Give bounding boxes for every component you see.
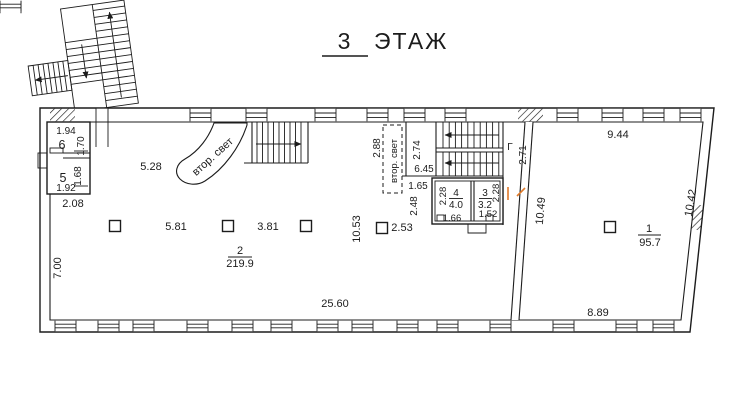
column [110,221,121,232]
room3-number: 3 [482,188,488,199]
dim-2-48: 2.48 [409,196,420,216]
dim-9-44: 9.44 [607,129,628,141]
room4-height: 2.28 [438,187,449,206]
dim-5-28: 5.28 [140,161,161,173]
dim-10-53: 10.53 [351,215,363,243]
external-staircase [21,0,138,117]
floor-title-text: ЭТАЖ [374,28,448,54]
stair-direction-arrow [109,12,121,97]
floor-plan-page: втор. свет втор. свет [0,0,752,415]
dim-2-71: 2.71 [518,145,529,165]
dim-10-49: 10.49 [534,197,548,225]
room3-width: 1.52 [479,209,498,220]
second-light-label-shaft: втор. свет [389,138,400,183]
room3-height: 2.28 [491,184,502,203]
room1-area: 95.7 [639,237,660,249]
room2-number: 2 [237,245,243,257]
column [223,221,234,232]
dim-25-60: 25.60 [321,298,349,310]
floor-title-number: 3 [338,28,351,54]
room1-number: 1 [646,223,652,235]
external-stair-wing [28,60,72,95]
dim-3-81: 3.81 [257,221,278,233]
dim-6-45: 6.45 [414,164,434,175]
dim-7-00: 7.00 [52,257,64,278]
column [605,222,616,233]
room4-area: 4.0 [449,200,463,211]
column [301,221,312,232]
room4-width: 1.66 [443,213,462,224]
column [377,223,388,234]
room6-number: 6 [59,138,66,152]
dim-2-53: 2.53 [391,222,412,234]
dim-2-08: 2.08 [62,198,83,210]
dim-5-81: 5.81 [165,221,186,233]
room6-width: 1.94 [56,126,76,137]
dim-2-88: 2.88 [372,138,383,158]
room6-height: 1.70 [76,136,87,156]
floor-title: 3 ЭТАЖ [322,28,448,56]
room4-number: 4 [453,188,459,199]
dim-8-89: 8.89 [587,307,608,319]
floor-plan-canvas: втор. свет втор. свет [0,0,752,415]
window [0,1,21,11]
room5-width: 1.92 [56,183,76,194]
dim-1-65: 1.65 [408,181,428,192]
dim-2-74: 2.74 [412,140,423,160]
room2-area: 219.9 [226,258,254,270]
gamma-mark: Г [507,142,513,153]
